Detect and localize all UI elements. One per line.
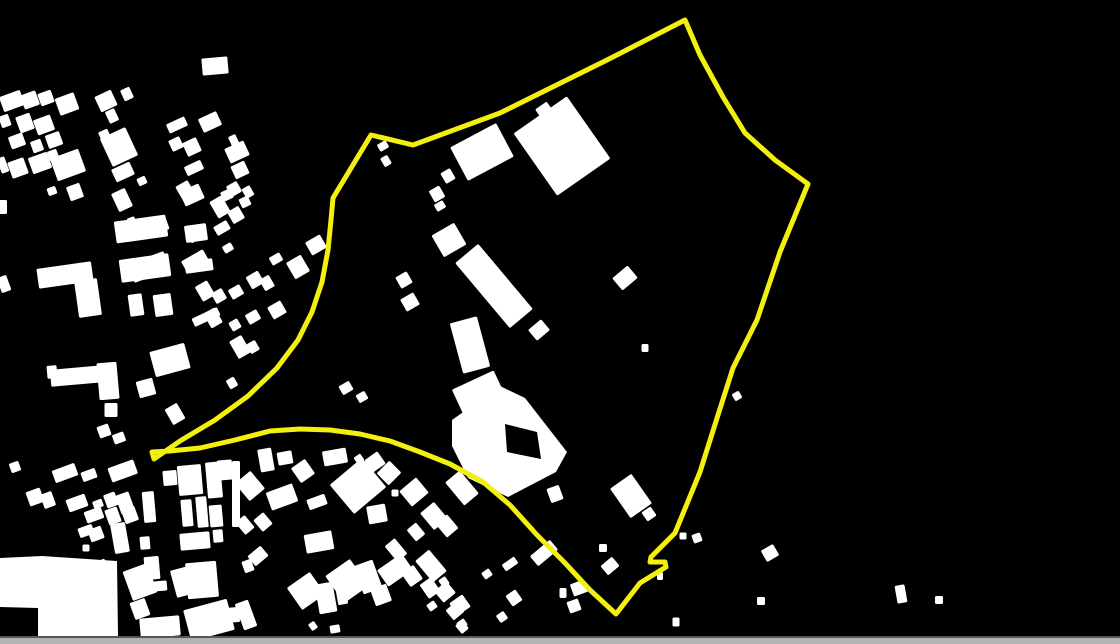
building-footprint: [212, 529, 223, 543]
building-footprint: [673, 618, 680, 627]
building-footprint: [217, 459, 234, 480]
building-footprint: [392, 490, 399, 497]
building-footprint: [680, 533, 687, 540]
building-footprint: [599, 544, 607, 552]
building-footprint: [757, 597, 765, 605]
building-mask-map: [0, 0, 1120, 644]
building-footprint: [0, 200, 7, 214]
building-footprint: [232, 461, 240, 527]
horizontal-scrollbar[interactable]: [0, 636, 1120, 644]
building-footprint: [83, 545, 90, 552]
building-footprint: [46, 365, 57, 379]
building-footprint: [276, 450, 293, 465]
building-footprint: [560, 588, 567, 598]
building-footprint: [935, 596, 943, 604]
map-background: [0, 0, 1120, 644]
building-footprint: [162, 470, 177, 486]
building-footprint: [177, 464, 204, 496]
building-footprint: [139, 536, 150, 550]
building-footprint: [642, 344, 649, 352]
building-footprint: [153, 293, 174, 317]
building-footprint: [179, 531, 210, 551]
building-footprint: [180, 499, 193, 527]
building-footprint: [209, 504, 224, 527]
building-footprint: [366, 503, 388, 524]
map-viewport: [0, 0, 1120, 644]
building-footprint: [105, 403, 118, 417]
building-footprint: [201, 56, 228, 75]
building-footprint: [329, 624, 340, 634]
building-footprint: [96, 362, 119, 401]
